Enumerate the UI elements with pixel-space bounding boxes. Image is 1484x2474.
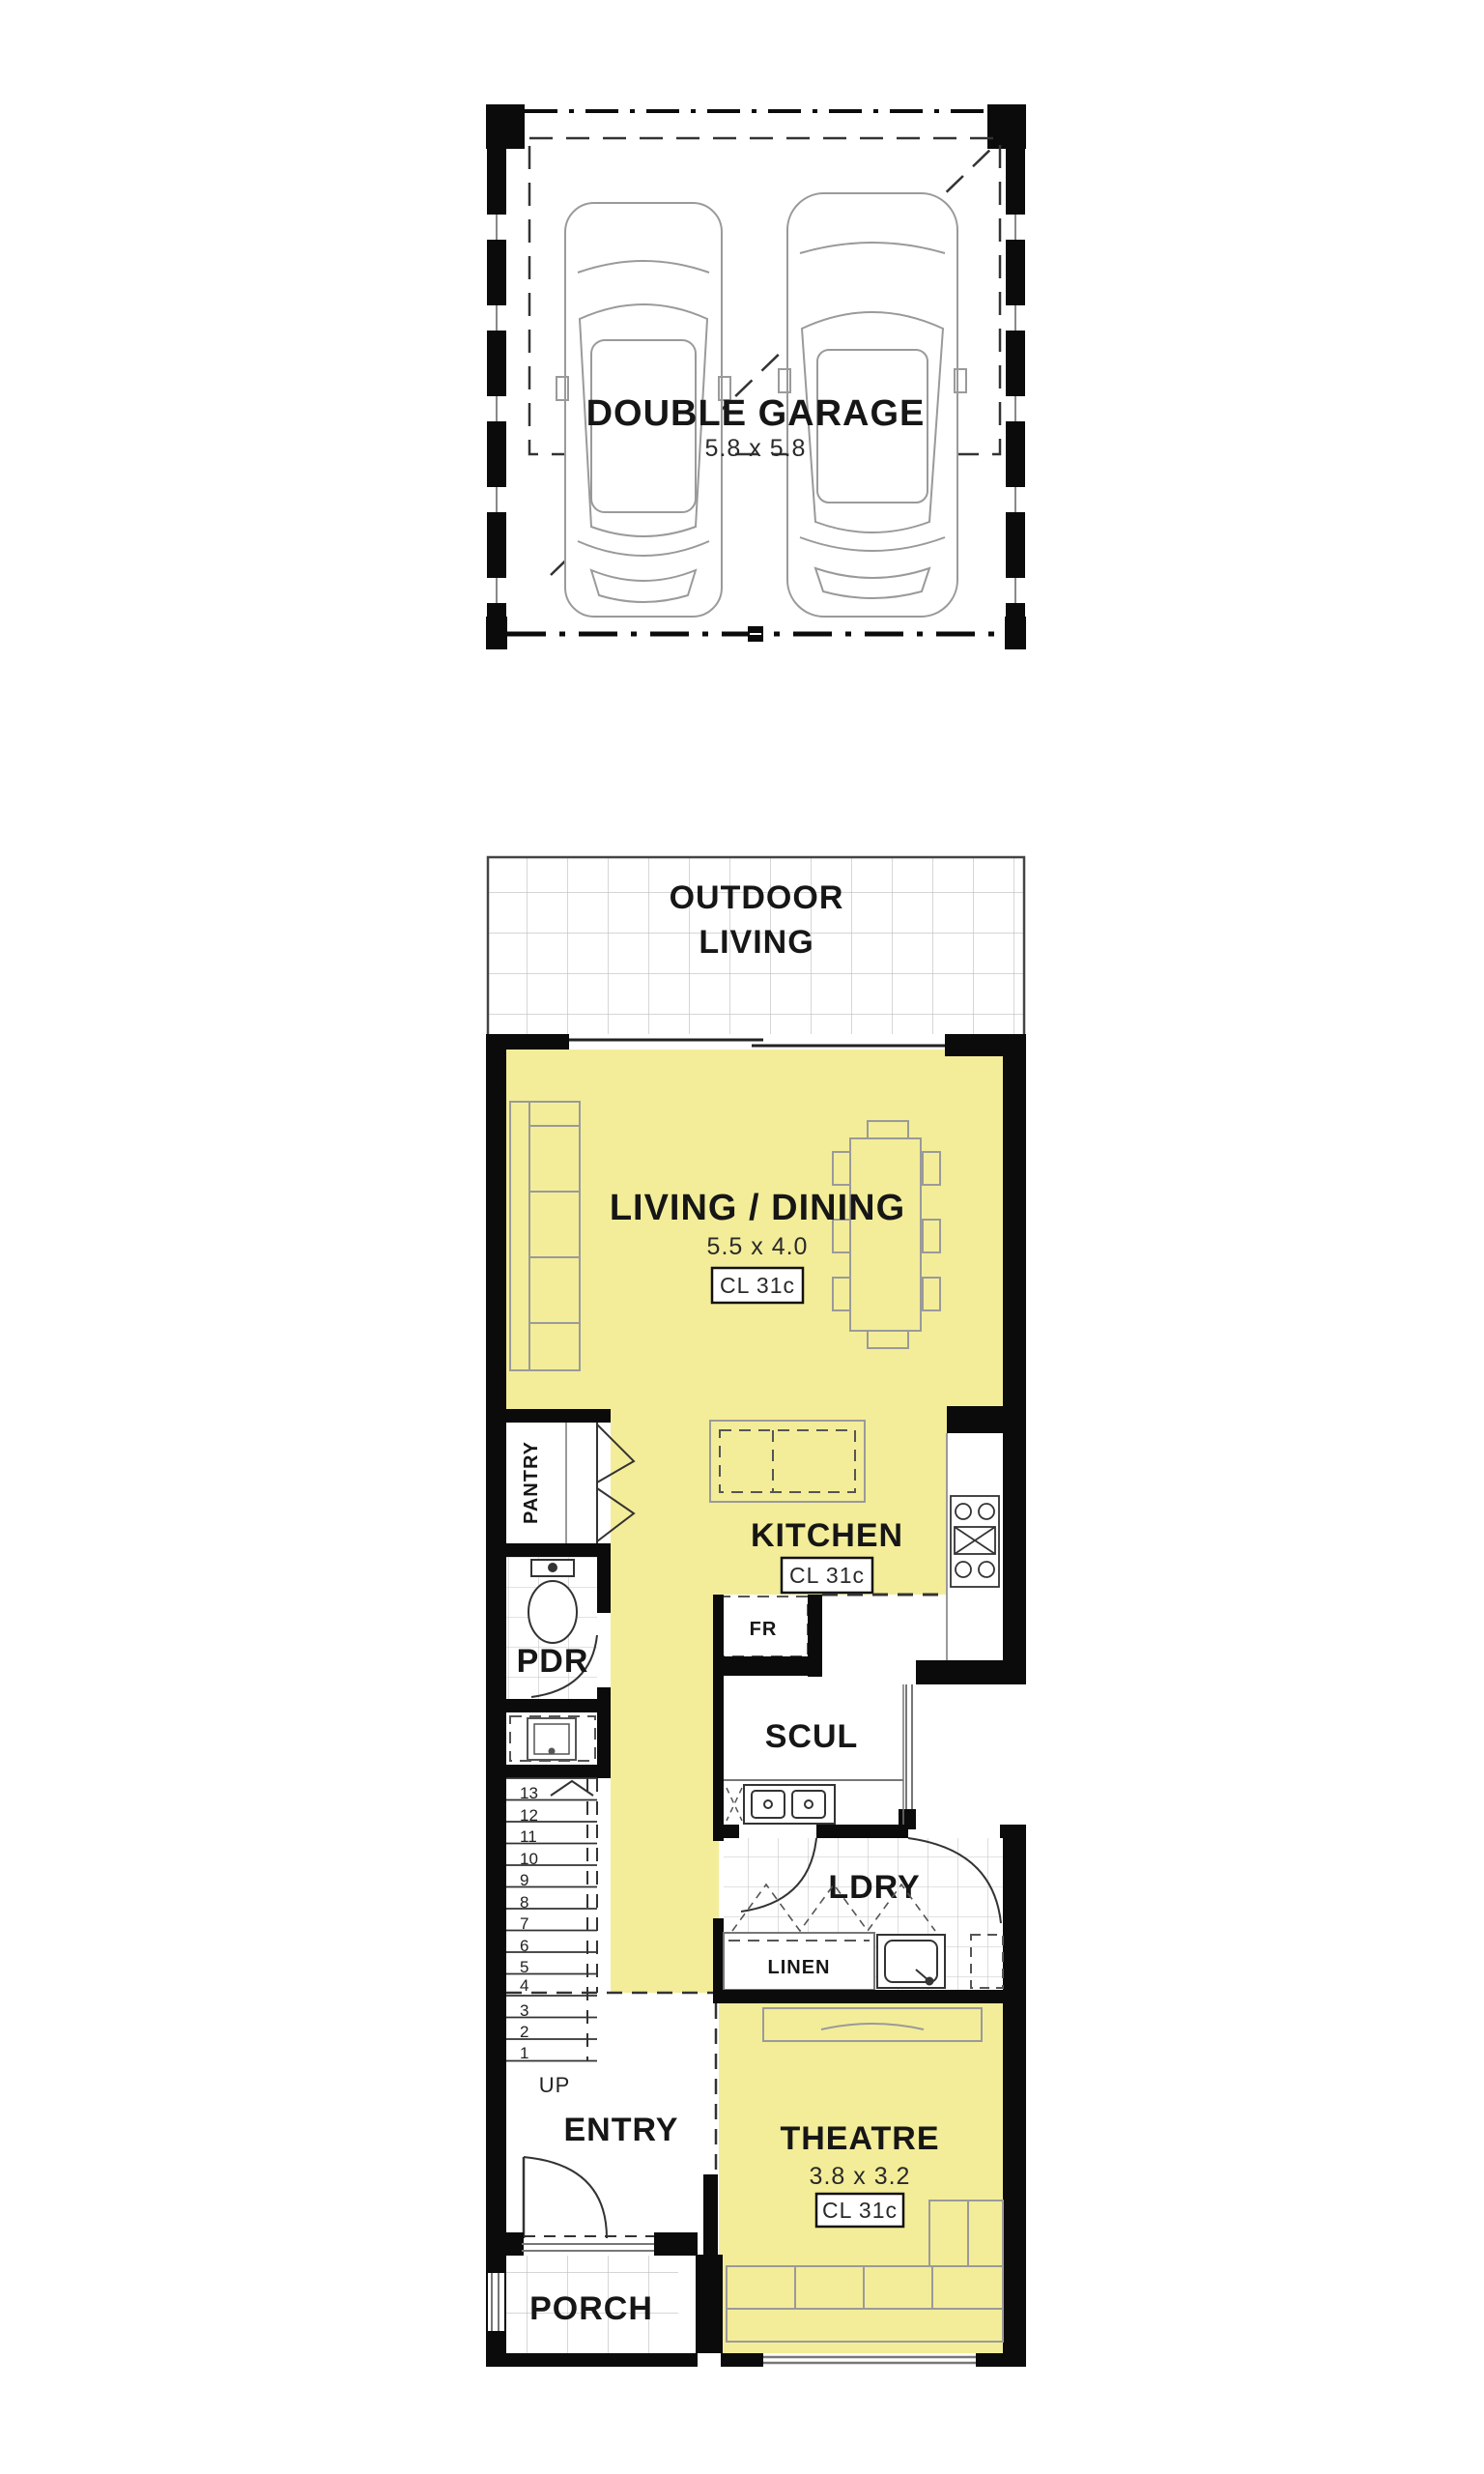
wall (486, 1699, 611, 1712)
living-dining-dims: 5.5 x 4.0 (707, 1233, 809, 1260)
kitchen-cl-label: CL 31c (789, 1563, 865, 1588)
scullery: SCUL (724, 1684, 903, 1825)
vanity (510, 1716, 595, 1761)
wall (713, 1595, 724, 1841)
garage-dims: 5.8 x 5.8 (705, 435, 807, 462)
pdr-label: PDR (517, 1643, 589, 1680)
theatre-cl-label: CL 31c (822, 2198, 898, 2223)
porch-label: PORCH (529, 2290, 653, 2327)
outdoor-living: OUTDOOR LIVING (488, 857, 1024, 1034)
stair-tread-number: 13 (520, 1784, 538, 1802)
double-sink (744, 1785, 835, 1824)
garage-wall (1005, 617, 1026, 649)
garage-wall (486, 104, 525, 149)
scullery-label: SCUL (765, 1718, 859, 1755)
stair-tread-number: 2 (520, 2023, 528, 2041)
wall-step (916, 1660, 1026, 1684)
laundry: LDRY LINEN (724, 1825, 1026, 1990)
wall-right-lower (1003, 1829, 1026, 2367)
stair-tread-number: 9 (520, 1871, 528, 1889)
porch: PORCH (486, 2255, 723, 2367)
garage-wall (987, 104, 1026, 149)
garage-wall (486, 617, 507, 649)
garage-label: DOUBLE GARAGE (586, 393, 926, 434)
kitchen-label: KITCHEN (751, 1517, 903, 1554)
stairs-up-label: UP (539, 2073, 571, 2097)
ground-floor-plan: OUTDOOR LIVING (486, 857, 1026, 2367)
living-dining-label: LIVING / DINING (610, 1188, 905, 1228)
theatre-dims: 3.8 x 3.2 (810, 2163, 911, 2190)
stair-tread-number: 10 (520, 1850, 538, 1868)
stair-tread-number: 1 (520, 2044, 528, 2062)
front-door-arc (524, 2157, 607, 2238)
stair-tread-number: 3 (520, 2001, 528, 2020)
floor-plan-drawing: DOUBLE GARAGE 5.8 x 5.8 OUTDOOR LIVING (0, 0, 1484, 2474)
garage-plan: DOUBLE GARAGE 5.8 x 5.8 (486, 104, 1026, 649)
stair-tread-number: 12 (520, 1806, 538, 1825)
outdoor-living-label-line2: LIVING (699, 924, 813, 961)
staircase: 13 12 11 10 9 8 7 6 5 4 3 2 1 UP (506, 1778, 597, 2097)
toilet (528, 1560, 577, 1643)
theatre-label: THEATRE (780, 2120, 939, 2157)
wall (486, 1765, 611, 1778)
wall (713, 1990, 1026, 2003)
wall (486, 1543, 611, 1557)
stair-tread-number: 5 (520, 1958, 528, 1976)
living-cl-label: CL 31c (720, 1273, 795, 1298)
stair-tread-number: 11 (520, 1827, 537, 1846)
stair-tread-number: 7 (520, 1914, 528, 1933)
outdoor-living-label-line1: OUTDOOR (670, 879, 844, 916)
laundry-label: LDRY (828, 1869, 920, 1906)
linen-label: LINEN (768, 1957, 831, 1978)
pantry-label: PANTRY (521, 1441, 542, 1524)
wall-right-upper (1003, 1034, 1026, 1684)
wall (486, 1409, 611, 1423)
pdr-room: PDR (506, 1557, 611, 1776)
laundry-trough (877, 1935, 945, 1988)
wall (713, 1656, 822, 1676)
entry-label: ENTRY (564, 2112, 679, 2148)
cooktop (951, 1496, 999, 1587)
entry: ENTRY (506, 2112, 698, 2256)
fridge-label: FR (750, 1619, 778, 1640)
stair-tread-number: 8 (520, 1893, 528, 1912)
floor-plan-page: DOUBLE GARAGE 5.8 x 5.8 OUTDOOR LIVING (0, 0, 1484, 2474)
stair-tread-number: 6 (520, 1937, 528, 1955)
